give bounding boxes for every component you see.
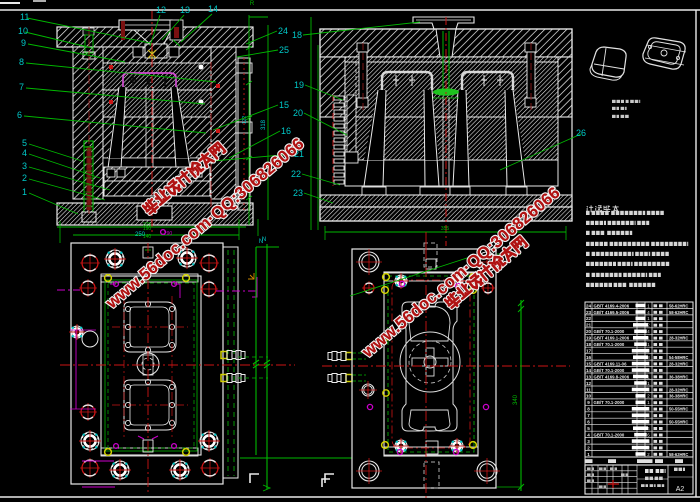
svg-text:12: 12 [586, 381, 592, 386]
svg-text:355: 355 [441, 226, 450, 232]
svg-text:22: 22 [586, 316, 592, 321]
svg-text:7: 7 [587, 413, 590, 418]
svg-text:58-62HRC: 58-62HRC [669, 310, 688, 315]
svg-text:9: 9 [21, 38, 26, 48]
svg-text:3: 3 [22, 161, 27, 171]
svg-text:23: 23 [586, 310, 592, 315]
svg-text:14: 14 [208, 4, 218, 14]
svg-text:36-38HRC: 36-38HRC [669, 374, 688, 379]
svg-text:340: 340 [513, 394, 519, 405]
svg-text:250: 250 [135, 232, 146, 238]
svg-text:36-38HRC: 36-38HRC [669, 394, 688, 399]
svg-text:13: 13 [180, 5, 190, 15]
svg-text:A2: A2 [676, 486, 685, 493]
svg-text:8: 8 [19, 57, 24, 67]
svg-text:24: 24 [586, 303, 592, 308]
svg-text:GB/T 4169.11-06: GB/T 4169.11-06 [594, 361, 628, 366]
svg-text:10: 10 [586, 394, 592, 399]
svg-text:58-62HRC: 58-62HRC [669, 452, 688, 457]
svg-text:GB/T 4169.5-2006: GB/T 4169.5-2006 [594, 310, 630, 315]
svg-text:1: 1 [587, 452, 590, 457]
svg-text:25: 25 [279, 45, 289, 55]
svg-text:GB/T 4169.1-2006: GB/T 4169.1-2006 [594, 336, 630, 341]
svg-text:N: N [259, 239, 263, 245]
svg-text:GB/T 70.1-2000: GB/T 70.1-2000 [594, 329, 625, 334]
svg-text:10: 10 [18, 26, 28, 36]
svg-text:4: 4 [22, 148, 27, 158]
svg-text:28-32HRC: 28-32HRC [669, 336, 688, 341]
svg-text:22: 22 [291, 169, 301, 179]
svg-text:7: 7 [19, 82, 24, 92]
svg-text:GB/T 70.1-2000: GB/T 70.1-2000 [594, 432, 625, 437]
svg-text:19: 19 [294, 80, 304, 90]
svg-text:28-32HRC: 28-32HRC [669, 361, 688, 366]
svg-text:6: 6 [587, 420, 590, 425]
svg-text:50-55HRC: 50-55HRC [669, 420, 688, 425]
svg-text:R: R [250, 1, 255, 7]
svg-text:8: 8 [587, 407, 590, 412]
svg-text:14: 14 [586, 368, 592, 373]
svg-text:11: 11 [20, 12, 29, 22]
svg-text:5: 5 [587, 426, 590, 431]
svg-text:3: 3 [587, 439, 590, 444]
svg-text:20: 20 [293, 108, 303, 118]
svg-text:9: 9 [587, 400, 590, 405]
svg-text:54-58HRC: 54-58HRC [669, 355, 688, 360]
svg-text:GB/T 70.1-2000: GB/T 70.1-2000 [594, 342, 625, 347]
svg-text:24: 24 [278, 26, 288, 36]
svg-text:2: 2 [587, 445, 590, 450]
svg-text:290: 290 [164, 231, 173, 237]
svg-text:GB/T 70.1-2000: GB/T 70.1-2000 [594, 400, 625, 405]
svg-text:21: 21 [586, 323, 592, 328]
svg-text:16: 16 [586, 355, 592, 360]
svg-text:17: 17 [586, 349, 592, 354]
svg-text:5: 5 [22, 138, 27, 148]
svg-text:50-55HRC: 50-55HRC [669, 407, 688, 412]
svg-text:18: 18 [292, 30, 302, 40]
svg-text:20: 20 [586, 329, 592, 334]
svg-text:4: 4 [587, 432, 590, 437]
svg-text:15: 15 [279, 100, 289, 110]
svg-text:19: 19 [586, 336, 592, 341]
svg-text:GB/T 4169.8-2006: GB/T 4169.8-2006 [594, 374, 630, 379]
svg-text:11: 11 [586, 387, 591, 392]
svg-text:18: 18 [586, 342, 592, 347]
svg-text:13: 13 [586, 374, 592, 379]
svg-text:6: 6 [17, 110, 22, 120]
svg-text:16: 16 [281, 126, 291, 136]
svg-text:1: 1 [22, 187, 27, 197]
svg-text:23: 23 [293, 188, 303, 198]
svg-text:12: 12 [156, 5, 166, 15]
svg-text:26: 26 [576, 128, 586, 138]
svg-text:GB/T 4169.4-2006: GB/T 4169.4-2006 [594, 303, 630, 308]
svg-text:28-32HRC: 28-32HRC [669, 387, 688, 392]
svg-text:15: 15 [586, 361, 592, 366]
svg-text:GB/T 70.1-2000: GB/T 70.1-2000 [594, 368, 625, 373]
svg-text:2: 2 [22, 173, 27, 183]
svg-text:58-62HRC: 58-62HRC [669, 303, 688, 308]
svg-text:318: 318 [261, 119, 267, 130]
